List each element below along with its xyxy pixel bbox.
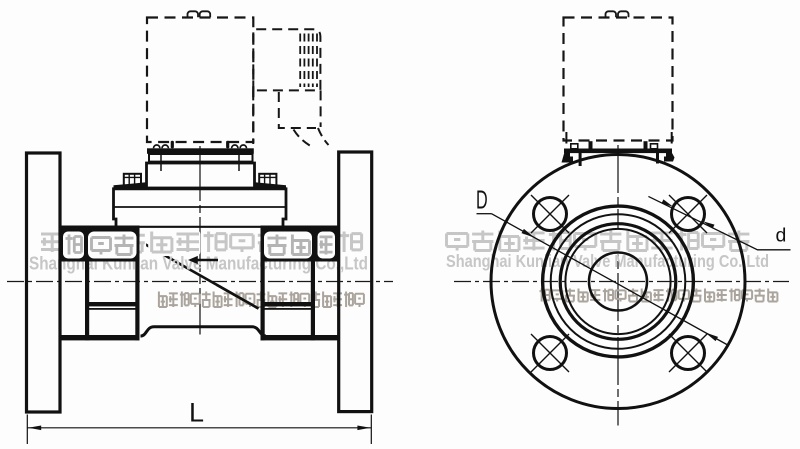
svg-text:L: L [189, 398, 204, 428]
svg-text:D: D [476, 184, 488, 214]
svg-text:d: d [776, 225, 787, 247]
